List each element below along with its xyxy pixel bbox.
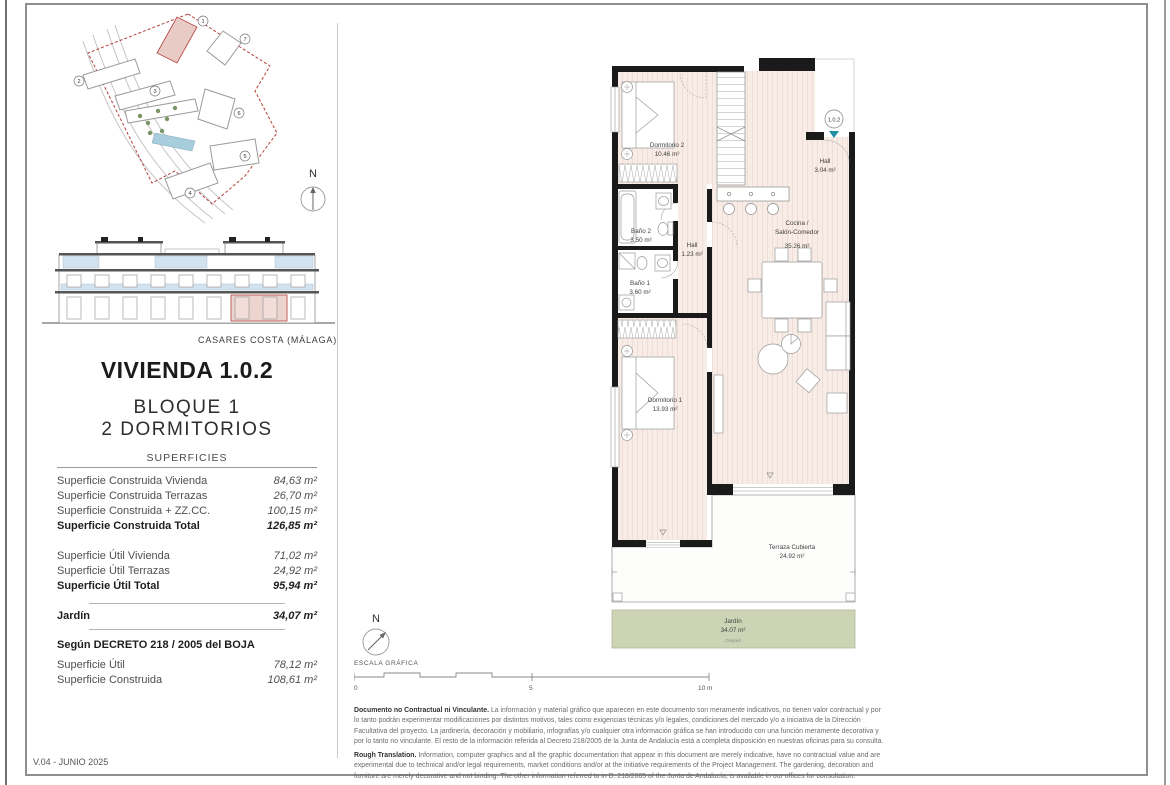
jardin-rule-bottom (89, 629, 285, 630)
surface-row: Superficie Útil Terrazas 24,92 m² (57, 565, 317, 578)
surface-value: 78,12 m² (274, 659, 317, 672)
room-area: 24.92 m² (780, 553, 805, 560)
surface-value: 108,61 m² (267, 674, 317, 687)
floorplan-drawing: 1.0.2 (610, 57, 860, 649)
building-number-7: 7 (243, 37, 246, 43)
building-number-2: 2 (77, 79, 80, 85)
building-6 (198, 89, 235, 129)
surface-value: 71,02 m² (274, 550, 317, 563)
room-area: 3.60 m² (629, 289, 650, 296)
surfaces-rule (57, 467, 317, 468)
scale-label: ESCALA GRÁFICA (354, 660, 418, 667)
surface-value: 24,92 m² (274, 565, 317, 578)
location-label: CASARES COSTA (MÁLAGA) (137, 335, 337, 345)
unit-title: VIVIENDA 1.0.2 (47, 357, 327, 384)
room-area: 3.04 m² (814, 167, 835, 174)
disclaimer-en: Rough Translation. Information, computer… (354, 751, 886, 782)
scale-tick-10: 10 m (698, 685, 712, 692)
entry-direction-icon (829, 131, 839, 138)
site-plan-drawing: 1 2 3 4 5 6 7 (55, 11, 310, 226)
surface-value: 34,07 m² (273, 610, 317, 623)
surface-label: Jardín (57, 610, 90, 623)
decree-heading: Según DECRETO 218 / 2005 del BOJA (57, 639, 317, 651)
room-area: 35.26 m² (785, 243, 810, 250)
room-area: 34.07 m² (721, 627, 746, 634)
room-name: Baño 2 (631, 228, 651, 235)
decree-row: Superficie Construida 108,61 m² (57, 674, 317, 687)
surface-label: Superficie Construida (57, 674, 162, 687)
room-name: Cocina / (785, 220, 808, 227)
surface-row: Superficie Útil Vivienda 71,02 m² (57, 550, 317, 563)
north-label: N (372, 613, 380, 625)
bathroom2-fixtures (619, 191, 673, 243)
surface-row: Superficie Construida + ZZ.CC. 100,15 m² (57, 505, 317, 518)
surface-label: Superficie Construida Total (57, 520, 200, 533)
room-name: Salón-Comedor (775, 229, 819, 236)
elevation-roof (59, 237, 315, 256)
room-name: Dormitorio 2 (650, 142, 685, 149)
unit-entry-marker: 1.0.2 (825, 110, 843, 138)
building-5 (210, 139, 259, 170)
elevation-windows-f3 (67, 297, 305, 319)
bed-dormitorio1 (622, 346, 675, 441)
surface-label: Superficie Útil Vivienda (57, 550, 170, 563)
scale-tick-0: 0 (354, 685, 358, 692)
bedrooms-label: 2 DORMITORIOS (47, 419, 327, 441)
surface-label: Superficie Construida Terrazas (57, 490, 207, 503)
surface-label: Superficie Construida + ZZ.CC. (57, 505, 210, 518)
room-name: Hall (820, 158, 831, 165)
disclaimer-en-body: Information, computer graphics and all t… (354, 752, 880, 780)
surface-row: Superficie Construida Terrazas 26,70 m² (57, 490, 317, 503)
surface-label: Superficie Útil Terrazas (57, 565, 170, 578)
wardrobe-dormitorio2 (619, 164, 677, 182)
surface-row-total: Superficie Construida Total 126,85 m² (57, 520, 317, 533)
surface-row: Superficie Construida Vivienda 84,63 m² (57, 475, 317, 488)
block-label: BLOQUE 1 (47, 397, 327, 419)
scale-bar: 0 5 10 m (354, 671, 734, 695)
north-label: N (309, 168, 317, 180)
north-arrow-icon: N (295, 165, 335, 221)
disclaimer-en-lead: Rough Translation. (354, 752, 416, 759)
building-number-4: 4 (188, 191, 191, 197)
wardrobe-dormitorio1 (618, 320, 676, 338)
unit-marker-label: 1.0.2 (828, 118, 840, 124)
room-name: Terraza Cubierta (769, 544, 816, 551)
north-arrow-plan-icon: N (359, 611, 399, 663)
room-name: Dormitorio 1 (648, 397, 683, 404)
surface-value: 26,70 m² (274, 490, 317, 503)
version-label: V.04 - JUNIO 2025 (33, 757, 108, 767)
jardin-rule-top (89, 603, 285, 604)
disclaimer-es: Documento no Contractual ni Vinculante. … (354, 706, 886, 747)
surface-value: 126,85 m² (267, 520, 317, 533)
garden-note: Césped (725, 638, 741, 643)
room-area: 13.93 m² (653, 406, 678, 413)
plan-sheet: 1 2 3 4 5 6 7 N (25, 3, 1148, 776)
surface-label: Superficie Construida Vivienda (57, 475, 207, 488)
building-number-6: 6 (237, 111, 240, 117)
decree-row: Superficie Útil 78,12 m² (57, 659, 317, 672)
surface-value: 100,15 m² (267, 505, 317, 518)
panel-divider (337, 23, 338, 758)
building-number-1: 1 (201, 19, 204, 25)
elevation-drawing (37, 235, 342, 335)
page-edge-right (1164, 0, 1166, 785)
room-name: Baño 1 (630, 280, 650, 287)
roads (83, 25, 233, 223)
scale-tick-5: 5 (529, 685, 533, 692)
room-name: Hall (687, 242, 698, 249)
room-area: 3.50 m² (630, 237, 651, 244)
page-edge-left (5, 0, 7, 785)
surface-label: Superficie Útil (57, 659, 125, 672)
surface-label: Superficie Útil Total (57, 580, 159, 593)
floorplan-sheet-page: { "meta": { "version": "V.04 - JUNIO 202… (0, 0, 1170, 785)
building-7 (207, 31, 241, 65)
building-number-5: 5 (243, 154, 246, 160)
surface-value: 95,94 m² (273, 580, 317, 593)
surfaces-heading: SUPERFICIES (57, 452, 317, 464)
surface-row-total: Superficie Útil Total 95,94 m² (57, 580, 317, 593)
jardin-row: Jardín 34,07 m² (57, 610, 317, 623)
disclaimer-es-lead: Documento no Contractual ni Vinculante. (354, 707, 489, 714)
building-number-3: 3 (153, 89, 156, 95)
room-area: 1.23 m² (681, 251, 702, 258)
elevation-windows-f2 (67, 275, 305, 287)
room-name: Jardín (724, 618, 742, 625)
surface-value: 84,63 m² (274, 475, 317, 488)
room-area: 10.46 m² (655, 151, 680, 158)
